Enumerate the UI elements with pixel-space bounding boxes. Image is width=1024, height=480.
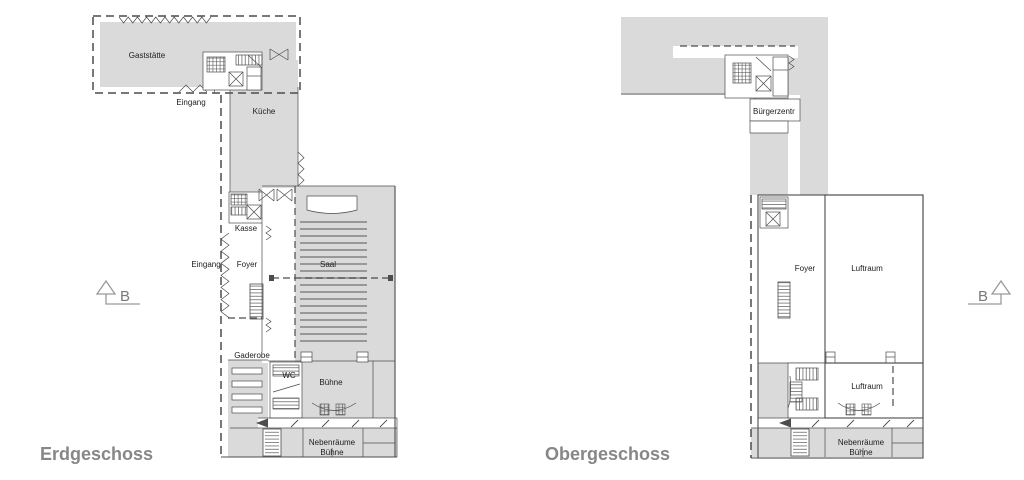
label-saal: Saal [320, 260, 336, 269]
stage-front [307, 196, 357, 214]
stair-treads [265, 431, 279, 454]
section-marker-letter: B [978, 288, 988, 305]
room-buehne [302, 361, 395, 418]
railing-post-icon [826, 352, 895, 363]
label-eingang-side: Eingang [191, 260, 220, 269]
label-foyer-og: Foyer [795, 264, 816, 273]
plan-erdgeschoss: Gaststätte Eingang Küche Kasse Eingang F… [40, 16, 397, 464]
buergerzentrum-box-lower [750, 121, 788, 133]
entrance-zigzag-icon [221, 233, 229, 318]
wall-opening-zigzag-icon [298, 152, 304, 186]
corridor [262, 188, 295, 363]
stair-treads [793, 431, 807, 454]
elevator-icon [229, 72, 243, 86]
label-nebenraeume-1: Nebenräume [309, 438, 356, 447]
label-nebenraeume-og-2: Bühne [849, 448, 873, 457]
label-garderobe: Gaderobe [234, 351, 270, 360]
roof-column [800, 95, 828, 195]
label-buergerzentrum: Bürgerzentr [753, 107, 795, 116]
direction-arrow-icon [779, 419, 791, 428]
stair-block-foyer-og [760, 197, 788, 228]
elevator-icon [247, 205, 261, 219]
section-marker-b-left: B [97, 281, 140, 305]
label-gaststaette: Gaststätte [129, 51, 166, 60]
foyer-stair-icon [778, 282, 790, 318]
label-luftraum-buehne: Luftraum [851, 382, 883, 391]
stair-block-top [203, 52, 262, 90]
section-marker-letter: B [120, 288, 130, 305]
label-eingang-top: Eingang [176, 98, 205, 107]
stair-block-kasse [229, 192, 262, 223]
label-buehne: Bühne [319, 378, 343, 387]
floor-plan-sheet: Gaststätte Eingang Küche Kasse Eingang F… [0, 0, 1024, 480]
foyer-stair-icon [250, 284, 263, 319]
label-kueche: Küche [253, 107, 276, 116]
label-nebenraeume-2: Bühne [320, 448, 344, 457]
plan-title-obergeschoss: Obergeschoss [545, 444, 670, 464]
elevator-icon [766, 212, 780, 226]
luftraum-saal-outline [825, 195, 923, 363]
plan-obergeschoss: Bürgerzentr [545, 17, 1010, 464]
label-foyer: Foyer [237, 260, 258, 269]
stair-complex-og [788, 363, 825, 418]
label-wc: WC [282, 371, 296, 380]
label-kasse: Kasse [235, 224, 258, 233]
plan-title-erdgeschoss: Erdgeschoss [40, 444, 153, 464]
section-marker-b-right: B [968, 281, 1010, 305]
floor-plan-drawing: Gaststätte Eingang Küche Kasse Eingang F… [0, 0, 1024, 480]
corridor-band [258, 418, 397, 428]
elevator-icon [756, 76, 771, 91]
label-nebenraeume-og-1: Nebenräume [838, 438, 885, 447]
piano-icon [838, 403, 880, 415]
label-luftraum-saal: Luftraum [851, 264, 883, 273]
roof-strip [750, 133, 788, 195]
grey-block-lower [758, 363, 788, 418]
